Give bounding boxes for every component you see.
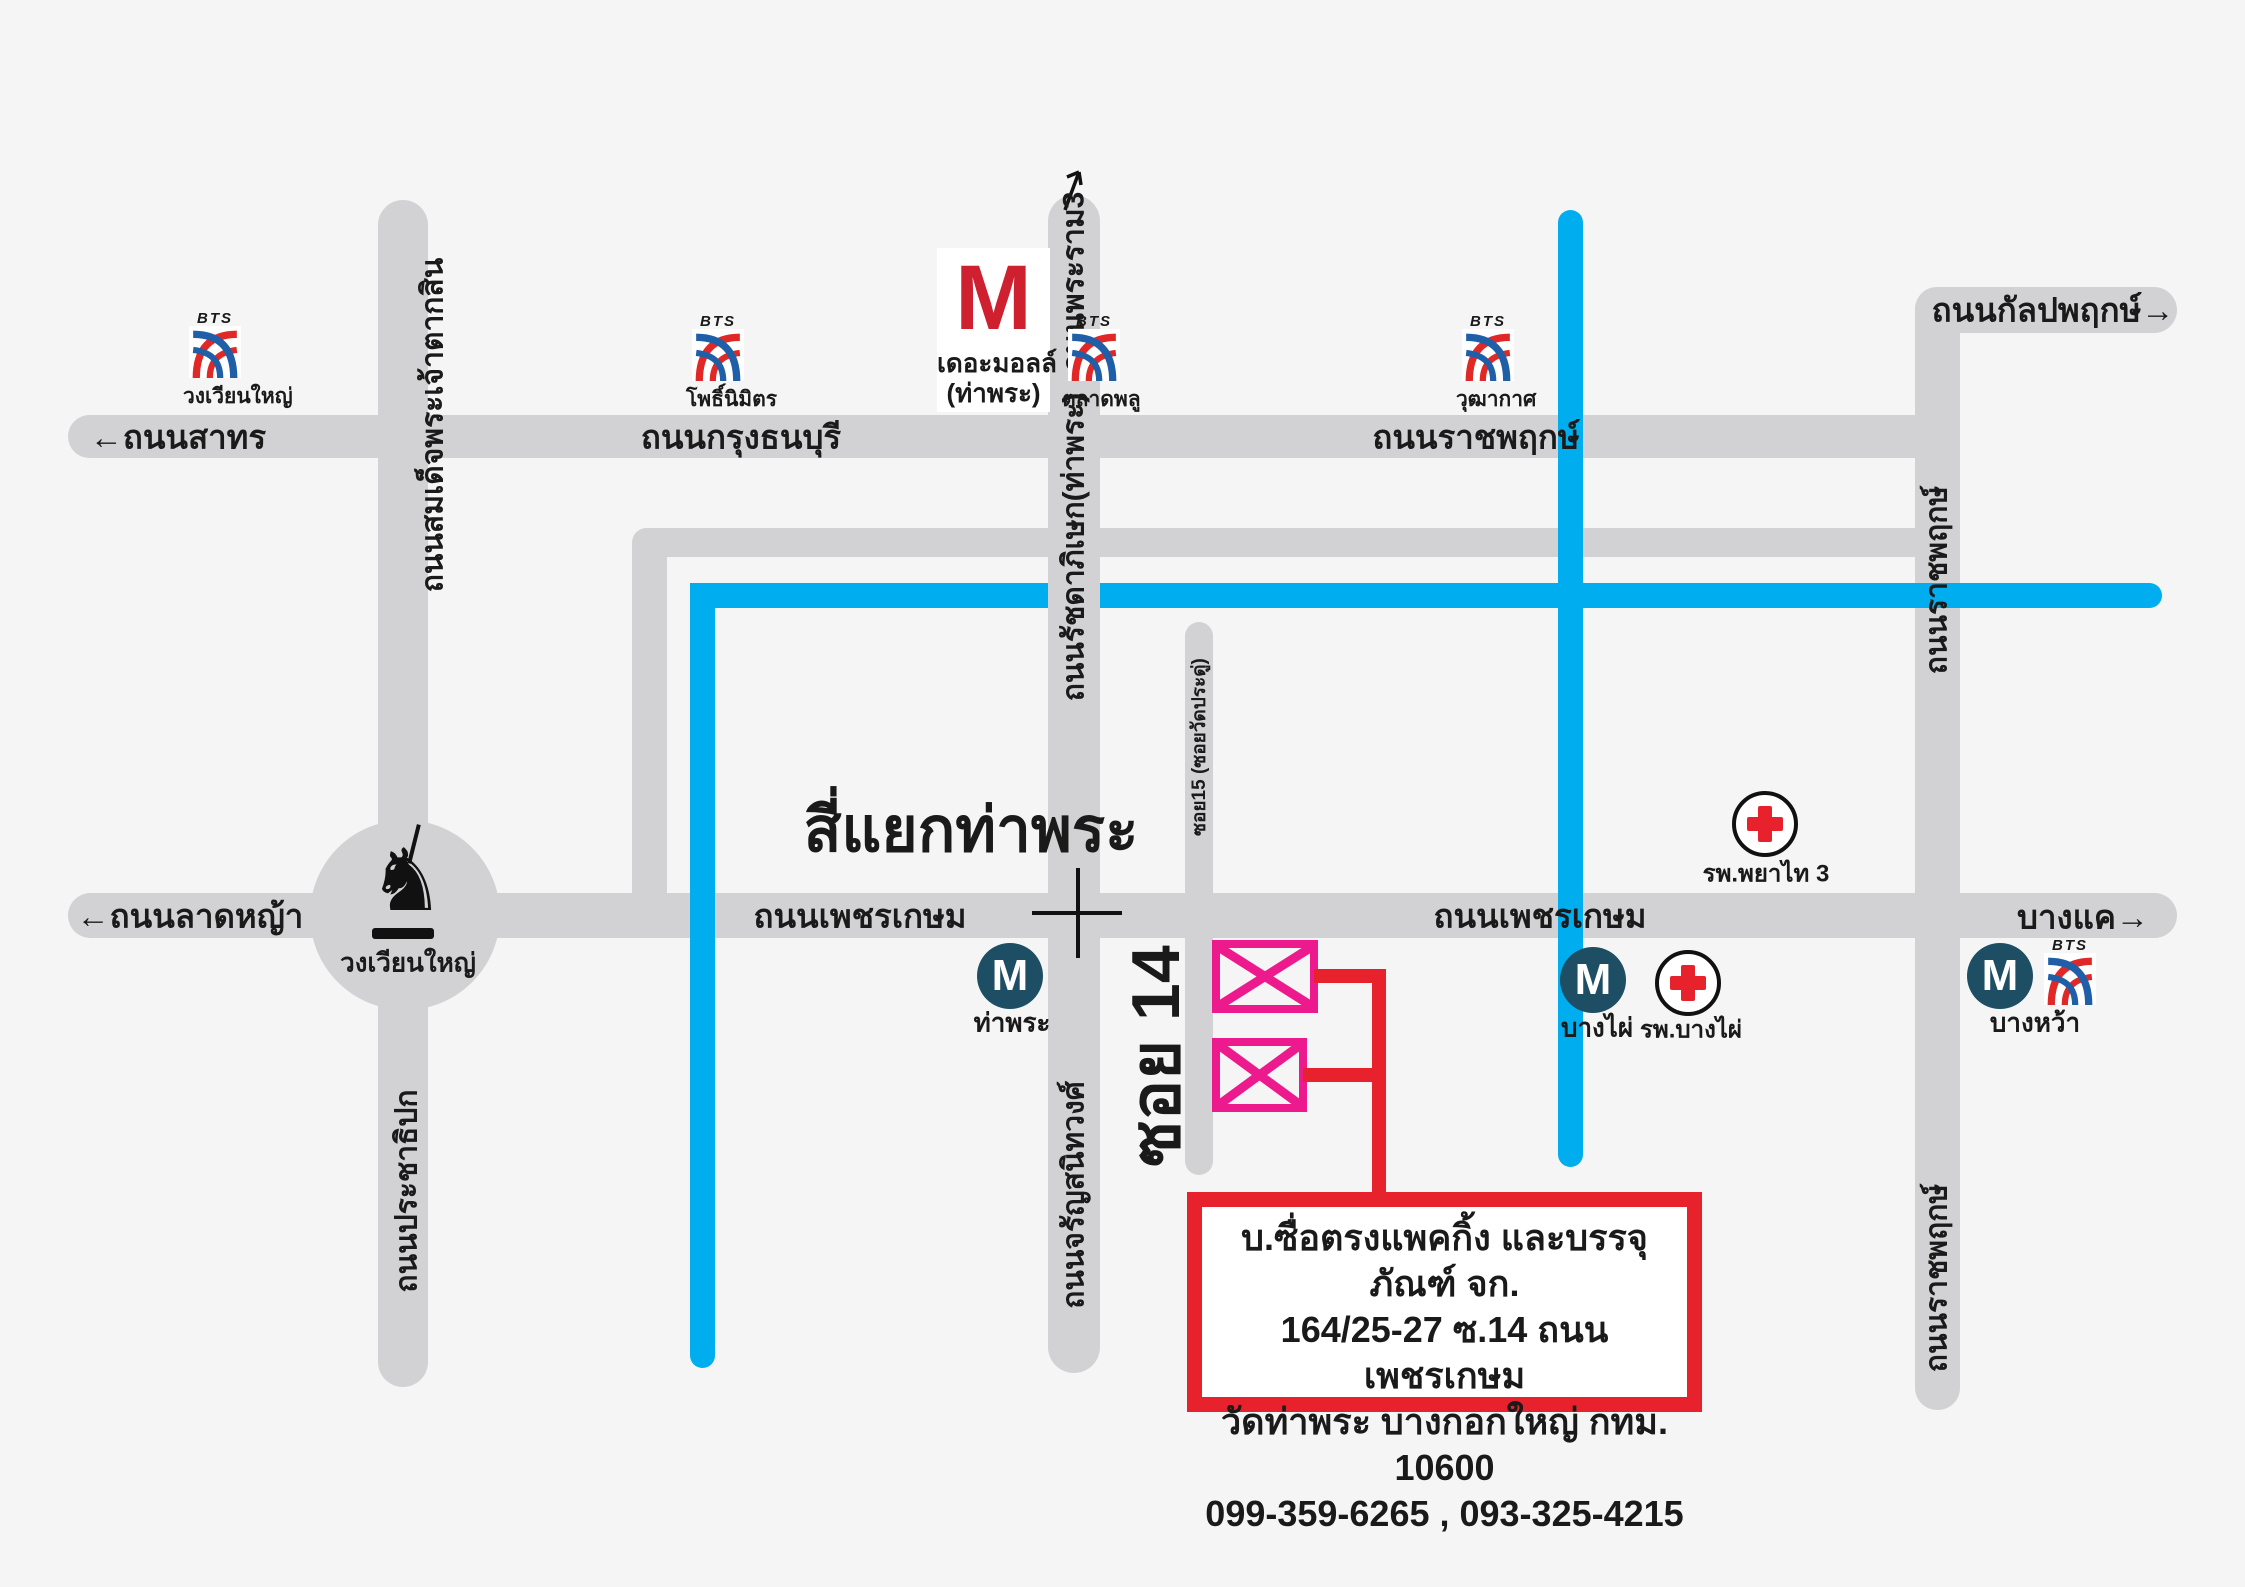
mall-m-icon: M	[937, 248, 1050, 348]
map-canvas: ←ถนนสาทร ถนนกรุงธนบุรี ถนนราชพฤกษ์ ถนนกั…	[0, 0, 2245, 1587]
road-label-taksin: ถนนสมเด็จพระเจ้าตากสิน	[410, 258, 457, 593]
bts-brand: BTS	[2038, 938, 2102, 953]
mrt-station-bangwa-icon: M	[1967, 943, 2033, 1009]
bts-brand: BTS	[1062, 314, 1126, 329]
road-secondary-horizontal	[632, 528, 1938, 557]
hospital-phyathai3-label: รพ.พยาไท 3	[1703, 854, 1830, 893]
bts-station-wongwianyai: BTS วงเวียนใหญ่	[183, 311, 247, 413]
route-line-vertical	[1372, 969, 1386, 1197]
bts-station-talatphlu: BTS ตลาดพลู	[1062, 314, 1126, 416]
red-cross-icon	[1758, 806, 1772, 842]
destination-building-2	[1212, 1038, 1307, 1112]
bts-logo-bangwa: BTS	[2038, 938, 2102, 1005]
the-mall-landmark: M เดอะมอลล์ (ท่าพระ)	[937, 248, 1050, 412]
bts-station-label: โพธิ์นิมิตร	[686, 383, 750, 416]
road-label-bangkhae: บางแค→	[2017, 891, 2149, 944]
mrt-station-thaphra-label: ท่าพระ	[974, 1003, 1051, 1044]
mrt-m: M	[1982, 954, 2019, 998]
road-label-ratchadaphisek: ถนนรัชดาภิเษก(ท่าพระ)	[1051, 393, 1098, 702]
road-label-charansanitwong: ถนนจรัญสนิทวงศ์	[1051, 1081, 1098, 1309]
road-label-ratchaphruek-lower: ถนนราชพฤกษ์	[1914, 1184, 1961, 1372]
bts-logo-icon	[189, 326, 241, 378]
mrt-m: M	[1575, 958, 1612, 1002]
mrt-m: M	[992, 954, 1029, 998]
destination-info-box: บ.ซื่อตรงแพคกิ้ง และบรรจุภัณฑ์ จก. 164/2…	[1187, 1192, 1702, 1412]
thaphra-intersection-name: สี่แยกท่าพระ	[804, 781, 1139, 879]
road-secondary-vertical	[632, 528, 667, 893]
bts-logo-icon	[2044, 953, 2096, 1005]
bts-brand: BTS	[686, 314, 750, 329]
bts-station-label: ตลาดพลู	[1062, 383, 1126, 416]
district-line: วัดท่าพระ บางกอกใหญ่ กทม. 10600	[1202, 1399, 1687, 1491]
wongwianyai-label: วงเวียนใหญ่	[340, 943, 476, 984]
red-cross-icon	[1681, 965, 1695, 1001]
road-label-phetkasem-west: ถนนเพชรเกษม	[753, 890, 966, 943]
company-name: บ.ซื่อตรงแพคกิ้ง และบรรจุภัณฑ์ จก.	[1202, 1215, 1687, 1307]
mrt-station-bangphai-label: บางไผ่	[1561, 1008, 1633, 1049]
road-label-soi14: ซอย 14	[1101, 945, 1209, 1166]
taksin-statue-icon: ♞	[368, 838, 445, 924]
bts-logo-icon	[692, 329, 744, 381]
bts-station-label: วุฒากาศ	[1456, 383, 1520, 416]
road-label-sathorn: ←ถนนสาทร	[90, 411, 266, 464]
canal-vertical-west	[690, 583, 715, 1368]
intersection-crosshair-v	[1076, 868, 1080, 958]
hospital-bangphai-icon	[1655, 950, 1721, 1016]
road-label-soi15: ซอย15 (ซอยวัดประดู่)	[1184, 658, 1214, 836]
bts-station-phonimit: BTS โพธิ์นิมิตร	[686, 314, 750, 416]
road-label-kanlapaphruek: ถนนกัลปพฤกษ์→	[1932, 284, 2175, 337]
hospital-phyathai3-icon	[1732, 791, 1798, 857]
mrt-bts-bangwa-label: บางหว้า	[1990, 1003, 2080, 1044]
hospital-bangphai-label: รพ.บางไผ่	[1640, 1010, 1742, 1049]
bts-station-wutthakat: BTS วุฒากาศ	[1456, 314, 1520, 416]
road-label-phetkasem-east: ถนนเพชรเกษม	[1433, 890, 1646, 943]
mall-subname: (ท่าพระ)	[937, 378, 1050, 408]
bts-logo-icon	[1068, 329, 1120, 381]
road-label-krungthonburi: ถนนกรุงธนบุรี	[641, 411, 841, 464]
mall-name: เดอะมอลล์	[937, 348, 1050, 378]
road-label-prachathipok: ถนนประชาธิปก	[384, 1089, 431, 1292]
road-label-ratchaphruek-upper: ถนนราชพฤกษ์	[1914, 486, 1961, 674]
destination-building-1	[1212, 940, 1318, 1013]
road-label-ladya: ←ถนนลาดหญ้า	[77, 890, 304, 943]
mrt-station-thaphra-icon: M	[977, 943, 1043, 1009]
bts-brand: BTS	[1456, 314, 1520, 329]
road-label-ratchaphruek-top: ถนนราชพฤกษ์	[1372, 411, 1579, 464]
bts-logo-icon	[1462, 329, 1514, 381]
statue-pedestal	[372, 928, 434, 939]
road-top-horizontal	[68, 415, 1960, 458]
address-line: 164/25-27 ซ.14 ถนนเพชรเกษม	[1202, 1307, 1687, 1399]
phone-numbers: 099-359-6265 , 093-325-4215	[1202, 1491, 1687, 1537]
mrt-station-bangphai-icon: M	[1560, 947, 1626, 1013]
bts-brand: BTS	[183, 311, 247, 326]
bts-station-label: วงเวียนใหญ่	[183, 380, 247, 413]
